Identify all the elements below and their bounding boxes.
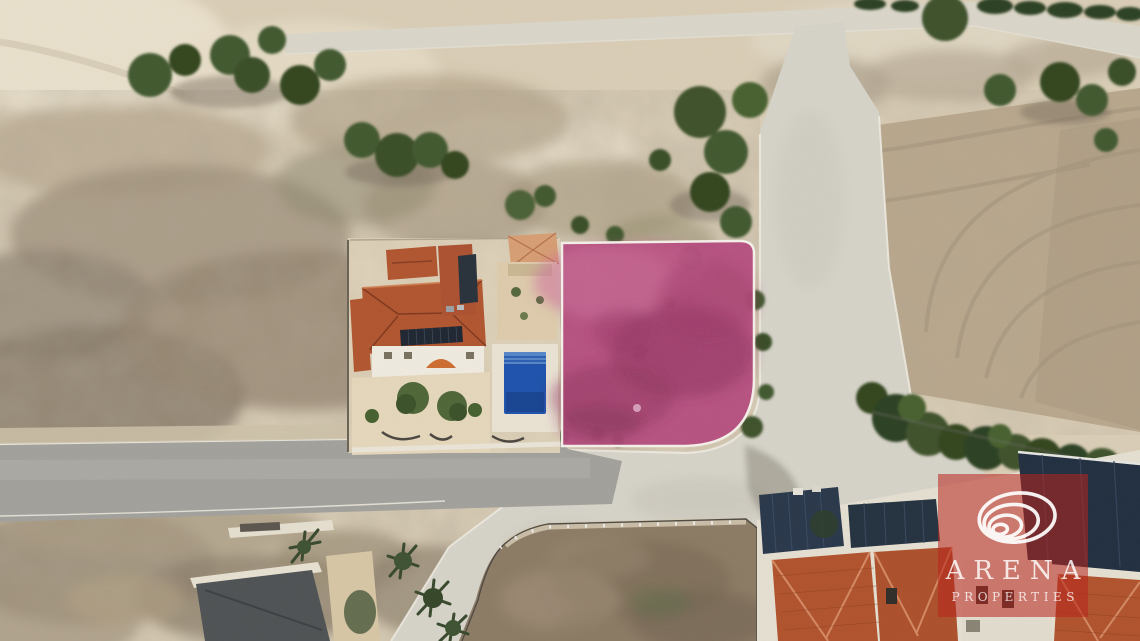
aerial-photo: ARENA PROPERTIES [0,0,1140,641]
photo-grain [0,0,1140,641]
aerial-scene [0,0,1140,641]
